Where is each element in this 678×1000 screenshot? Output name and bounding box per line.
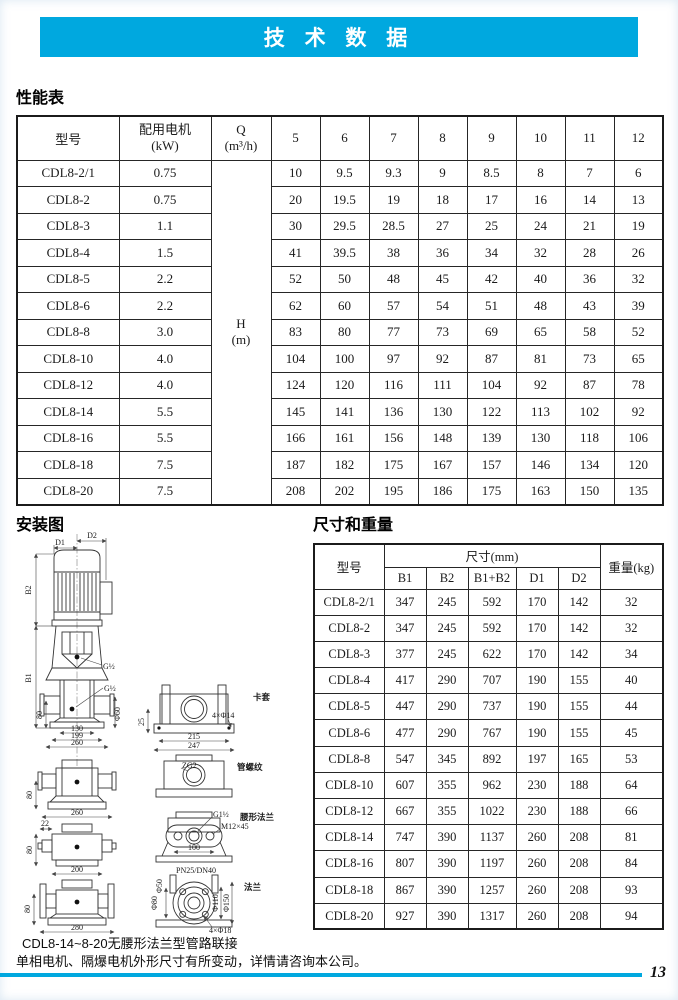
h-value-cell: 182 bbox=[320, 452, 369, 479]
h-value-cell: 52 bbox=[271, 266, 320, 293]
b2-cell: 290 bbox=[426, 694, 468, 720]
table-row: CDL8-647729076719015545 bbox=[314, 720, 663, 746]
model-cell: CDL8-4 bbox=[17, 240, 119, 267]
h-value-cell: 113 bbox=[516, 399, 565, 426]
h-value-cell: 202 bbox=[320, 478, 369, 505]
h-unit: (m) bbox=[212, 332, 271, 348]
table-row: CDL8-187.5187182175167157146134120 bbox=[17, 452, 663, 479]
b2-cell: 355 bbox=[426, 772, 468, 798]
table-row: CDL8-16807390119726020884 bbox=[314, 851, 663, 877]
flow-value-header: 6 bbox=[320, 116, 369, 160]
weight-cell: 64 bbox=[600, 772, 663, 798]
h-value-cell: 92 bbox=[516, 372, 565, 399]
d2-cell: 155 bbox=[558, 720, 600, 746]
weight-cell: 93 bbox=[600, 877, 663, 903]
installation-diagram: D1 D2 B2 bbox=[16, 528, 311, 936]
b1-cell: 747 bbox=[384, 825, 426, 851]
table-row: CDL8-145.514514113613012211310292 bbox=[17, 399, 663, 426]
performance-table: 型号 配用电机(kW) Q(m³/h) 5 6 7 8 9 10 11 12 C… bbox=[16, 115, 664, 506]
d1-cell: 190 bbox=[516, 694, 558, 720]
d2-cell: 142 bbox=[558, 641, 600, 667]
table-row: CDL8-2/1 0.75 H(m) 109.59.398.5876 bbox=[17, 160, 663, 187]
h-value-cell: 48 bbox=[516, 293, 565, 320]
h-value-cell: 166 bbox=[271, 425, 320, 452]
b1b2-cell: 707 bbox=[468, 668, 516, 694]
label-pipe-thread: 管螺纹 bbox=[237, 762, 263, 772]
dim-label-b1: B1 bbox=[24, 673, 33, 682]
base-view-ferrule: 80 260 bbox=[25, 760, 116, 817]
h-value-cell: 32 bbox=[614, 266, 663, 293]
table-row: CDL8-20.752019.5191817161413 bbox=[17, 187, 663, 214]
h-value-cell: 19.5 bbox=[320, 187, 369, 214]
h-value-cell: 7 bbox=[565, 160, 614, 187]
model-cell: CDL8-3 bbox=[314, 641, 384, 667]
h-value-cell: 116 bbox=[369, 372, 418, 399]
table-row: CDL8-52.25250484542403632 bbox=[17, 266, 663, 293]
h-value-cell: 16 bbox=[516, 187, 565, 214]
footer-rule bbox=[0, 973, 642, 977]
d2-cell: 155 bbox=[558, 668, 600, 694]
d1-cell: 260 bbox=[516, 877, 558, 903]
h-symbol: H bbox=[212, 316, 271, 332]
h-value-cell: 195 bbox=[369, 478, 418, 505]
h-value-cell: 50 bbox=[320, 266, 369, 293]
model-header-cell: 型号 bbox=[314, 544, 384, 589]
kw-cell: 7.5 bbox=[119, 478, 211, 505]
model-cell: CDL8-8 bbox=[314, 746, 384, 772]
stand-view-flange: PN25/DN40 Φ50 Φ80 Φ110 Φ150 4×Φ18 法兰 bbox=[150, 866, 262, 935]
h-value-cell: 41 bbox=[271, 240, 320, 267]
dim-label-280: 280 bbox=[71, 923, 83, 932]
table-row: CDL8-1060735596223018864 bbox=[314, 772, 663, 798]
h-value-cell: 83 bbox=[271, 319, 320, 346]
table-row: CDL8-854734589219716553 bbox=[314, 746, 663, 772]
h-value-cell: 30 bbox=[271, 213, 320, 240]
h-value-cell: 9.3 bbox=[369, 160, 418, 187]
size-col-header: D1 bbox=[516, 567, 558, 589]
table-row: CDL8-31.13029.528.52725242119 bbox=[17, 213, 663, 240]
kw-cell: 1.1 bbox=[119, 213, 211, 240]
h-value-cell: 39.5 bbox=[320, 240, 369, 267]
dim-label-260: 260 bbox=[71, 738, 83, 747]
model-cell: CDL8-6 bbox=[17, 293, 119, 320]
kw-cell: 0.75 bbox=[119, 187, 211, 214]
kw-cell: 3.0 bbox=[119, 319, 211, 346]
d2-cell: 165 bbox=[558, 746, 600, 772]
d2-cell: 208 bbox=[558, 825, 600, 851]
weight-cell: 40 bbox=[600, 668, 663, 694]
d2-cell: 142 bbox=[558, 589, 600, 615]
model-cell: CDL8-12 bbox=[314, 799, 384, 825]
model-cell: CDL8-14 bbox=[17, 399, 119, 426]
dim-label-80: 80 bbox=[35, 711, 44, 719]
motor-header-line1: 配用电机 bbox=[120, 122, 211, 138]
kw-cell: 4.0 bbox=[119, 346, 211, 373]
terminal-box bbox=[100, 582, 112, 614]
h-value-cell: 124 bbox=[271, 372, 320, 399]
kw-cell: 1.5 bbox=[119, 240, 211, 267]
h-value-cell: 157 bbox=[467, 452, 516, 479]
dim-label-80: 80 bbox=[25, 791, 34, 799]
h-value-cell: 36 bbox=[565, 266, 614, 293]
d2-cell: 188 bbox=[558, 799, 600, 825]
h-value-cell: 80 bbox=[320, 319, 369, 346]
size-col-header: B1+B2 bbox=[468, 567, 516, 589]
b1b2-cell: 767 bbox=[468, 720, 516, 746]
dim-label-260: 260 bbox=[71, 808, 83, 817]
model-cell: CDL8-18 bbox=[314, 877, 384, 903]
h-value-cell: 150 bbox=[565, 478, 614, 505]
h-value-cell: 118 bbox=[565, 425, 614, 452]
table-row: CDL8-441729070719015540 bbox=[314, 668, 663, 694]
dim-label-100: 100 bbox=[188, 843, 200, 852]
model-header-cell: 型号 bbox=[17, 116, 119, 160]
h-value-cell: 130 bbox=[418, 399, 467, 426]
pump-front-view: D1 D2 B2 bbox=[24, 531, 122, 766]
performance-section-heading: 性能表 bbox=[16, 84, 64, 108]
h-value-cell: 208 bbox=[271, 478, 320, 505]
flow-value-header: 9 bbox=[467, 116, 516, 160]
h-value-cell: 163 bbox=[516, 478, 565, 505]
h-value-cell: 48 bbox=[369, 266, 418, 293]
weight-cell: 66 bbox=[600, 799, 663, 825]
h-value-cell: 92 bbox=[418, 346, 467, 373]
b1-cell: 547 bbox=[384, 746, 426, 772]
dim-label-m12x45: M12×45 bbox=[221, 822, 249, 831]
h-value-cell: 62 bbox=[271, 293, 320, 320]
table-header-row: 型号 尺寸(mm) 重量(kg) bbox=[314, 544, 663, 567]
kw-cell: 2.2 bbox=[119, 266, 211, 293]
b2-cell: 290 bbox=[426, 668, 468, 694]
table-row: CDL8-14747390113726020881 bbox=[314, 825, 663, 851]
port-label-g-half-1: G½ bbox=[103, 662, 115, 671]
table-row: CDL8-165.5166161156148139130118106 bbox=[17, 425, 663, 452]
b1-cell: 667 bbox=[384, 799, 426, 825]
model-cell: CDL8-2 bbox=[314, 615, 384, 641]
h-value-cell: 120 bbox=[320, 372, 369, 399]
b2-cell: 390 bbox=[426, 877, 468, 903]
table-row: CDL8-83.08380777369655852 bbox=[17, 319, 663, 346]
weight-cell: 53 bbox=[600, 746, 663, 772]
h-value-cell: 58 bbox=[565, 319, 614, 346]
h-value-cell: 145 bbox=[271, 399, 320, 426]
h-value-cell: 73 bbox=[565, 346, 614, 373]
note-motor-dimensions: 单相电机、隔爆电机外形尺寸有所变动，详情请咨询本公司。 bbox=[16, 951, 367, 970]
d1-cell: 170 bbox=[516, 615, 558, 641]
b1b2-cell: 592 bbox=[468, 615, 516, 641]
dimensions-section-heading: 尺寸和重量 bbox=[313, 511, 393, 535]
h-value-cell: 13 bbox=[614, 187, 663, 214]
d2-cell: 208 bbox=[558, 851, 600, 877]
dim-label-d2: D2 bbox=[87, 531, 97, 540]
stand-view-pipe-thread: ZG2 管螺纹 bbox=[156, 755, 263, 797]
base-view-threaded: 22 80 200 bbox=[25, 819, 116, 874]
h-value-cell: 18 bbox=[418, 187, 467, 214]
b2-cell: 245 bbox=[426, 589, 468, 615]
weight-header-cell: 重量(kg) bbox=[600, 544, 663, 589]
flow-value-header: 10 bbox=[516, 116, 565, 160]
h-value-cell: 27 bbox=[418, 213, 467, 240]
b1b2-cell: 962 bbox=[468, 772, 516, 798]
d1-cell: 260 bbox=[516, 825, 558, 851]
table-row: CDL8-18867390125726020893 bbox=[314, 877, 663, 903]
h-value-cell: 77 bbox=[369, 319, 418, 346]
motor-header-cell: 配用电机(kW) bbox=[119, 116, 211, 160]
kw-cell: 5.5 bbox=[119, 399, 211, 426]
h-value-cell: 9.5 bbox=[320, 160, 369, 187]
b1-cell: 377 bbox=[384, 641, 426, 667]
table-row: CDL8-2/134724559217014232 bbox=[314, 589, 663, 615]
model-cell: CDL8-2/1 bbox=[314, 589, 384, 615]
model-cell: CDL8-20 bbox=[314, 903, 384, 929]
banner-title: 技 术 数 据 bbox=[264, 22, 415, 52]
table-row: CDL8-207.5208202195186175163150135 bbox=[17, 478, 663, 505]
page-banner: 技 术 数 据 bbox=[40, 17, 638, 57]
weight-cell: 45 bbox=[600, 720, 663, 746]
h-value-cell: 29.5 bbox=[320, 213, 369, 240]
d1-cell: 170 bbox=[516, 641, 558, 667]
table-row: CDL8-234724559217014232 bbox=[314, 615, 663, 641]
d2-cell: 208 bbox=[558, 877, 600, 903]
dim-label-80: 80 bbox=[25, 846, 34, 854]
h-value-cell: 26 bbox=[614, 240, 663, 267]
model-cell: CDL8-12 bbox=[17, 372, 119, 399]
h-value-cell: 97 bbox=[369, 346, 418, 373]
h-value-cell: 45 bbox=[418, 266, 467, 293]
dim-label-phi50: Φ50 bbox=[155, 879, 164, 893]
h-value-cell: 14 bbox=[565, 187, 614, 214]
model-cell: CDL8-16 bbox=[314, 851, 384, 877]
h-value-cell: 120 bbox=[614, 452, 663, 479]
b1-cell: 417 bbox=[384, 668, 426, 694]
b1b2-cell: 892 bbox=[468, 746, 516, 772]
dim-label-phi110: Φ110 bbox=[211, 894, 220, 912]
dimensions-table: 型号 尺寸(mm) 重量(kg) B1 B2 B1+B2 D1 D2 CDL8-… bbox=[313, 543, 664, 930]
h-value-cell: 42 bbox=[467, 266, 516, 293]
d1-cell: 230 bbox=[516, 772, 558, 798]
weight-cell: 84 bbox=[600, 851, 663, 877]
weight-cell: 94 bbox=[600, 903, 663, 929]
h-value-cell: 57 bbox=[369, 293, 418, 320]
model-cell: CDL8-5 bbox=[17, 266, 119, 293]
h-value-cell: 141 bbox=[320, 399, 369, 426]
h-value-cell: 28.5 bbox=[369, 213, 418, 240]
flow-value-header: 8 bbox=[418, 116, 467, 160]
d2-cell: 188 bbox=[558, 772, 600, 798]
b1b2-cell: 1197 bbox=[468, 851, 516, 877]
h-value-cell: 19 bbox=[369, 187, 418, 214]
b1-cell: 447 bbox=[384, 694, 426, 720]
h-value-cell: 60 bbox=[320, 293, 369, 320]
model-cell: CDL8-20 bbox=[17, 478, 119, 505]
table-row: CDL8-544729073719015544 bbox=[314, 694, 663, 720]
model-cell: CDL8-2/1 bbox=[17, 160, 119, 187]
h-value-cell: 187 bbox=[271, 452, 320, 479]
d1-cell: 190 bbox=[516, 668, 558, 694]
h-value-cell: 139 bbox=[467, 425, 516, 452]
b2-cell: 390 bbox=[426, 903, 468, 929]
kw-cell: 2.2 bbox=[119, 293, 211, 320]
kw-cell: 7.5 bbox=[119, 452, 211, 479]
d1-cell: 190 bbox=[516, 720, 558, 746]
b2-cell: 390 bbox=[426, 825, 468, 851]
b2-cell: 355 bbox=[426, 799, 468, 825]
b2-cell: 390 bbox=[426, 851, 468, 877]
dim-label-200: 200 bbox=[71, 865, 83, 874]
stand-view-waist-flange: 100 G1½ M12×45 腰形法兰 bbox=[156, 810, 275, 862]
dim-label-247: 247 bbox=[188, 741, 200, 750]
d1-cell: 260 bbox=[516, 851, 558, 877]
dim-label-phi80: Φ80 bbox=[150, 896, 159, 910]
h-value-cell: 21 bbox=[565, 213, 614, 240]
dim-label-4x14: 4×Φ14 bbox=[212, 711, 234, 720]
table-row: CDL8-20927390131726020894 bbox=[314, 903, 663, 929]
h-value-cell: 146 bbox=[516, 452, 565, 479]
b1-cell: 607 bbox=[384, 772, 426, 798]
d1-cell: 260 bbox=[516, 903, 558, 929]
h-value-cell: 175 bbox=[467, 478, 516, 505]
model-cell: CDL8-10 bbox=[17, 346, 119, 373]
h-value-cell: 73 bbox=[418, 319, 467, 346]
h-value-cell: 87 bbox=[467, 346, 516, 373]
d1-cell: 197 bbox=[516, 746, 558, 772]
label-waist-flange: 腰形法兰 bbox=[239, 812, 275, 822]
h-value-cell: 54 bbox=[418, 293, 467, 320]
h-value-cell: 175 bbox=[369, 452, 418, 479]
h-value-cell: 69 bbox=[467, 319, 516, 346]
dim-label-80: 80 bbox=[23, 905, 32, 913]
flow-header-cell: Q(m³/h) bbox=[211, 116, 271, 160]
head-unit-cell: H(m) bbox=[211, 160, 271, 505]
d2-cell: 155 bbox=[558, 694, 600, 720]
h-value-cell: 9 bbox=[418, 160, 467, 187]
note-flange-connection: CDL8-14~8-20无腰形法兰型管路联接 bbox=[22, 933, 238, 952]
b2-cell: 245 bbox=[426, 641, 468, 667]
table-row: CDL8-124.0124120116111104928778 bbox=[17, 372, 663, 399]
b1b2-cell: 592 bbox=[468, 589, 516, 615]
table-header-row: 型号 配用电机(kW) Q(m³/h) 5 6 7 8 9 10 11 12 bbox=[17, 116, 663, 160]
model-cell: CDL8-18 bbox=[17, 452, 119, 479]
h-value-cell: 51 bbox=[467, 293, 516, 320]
table-row: CDL8-12667355102223018866 bbox=[314, 799, 663, 825]
dim-label-25: 25 bbox=[137, 718, 146, 726]
model-cell: CDL8-14 bbox=[314, 825, 384, 851]
b2-cell: 290 bbox=[426, 720, 468, 746]
h-value-cell: 100 bbox=[320, 346, 369, 373]
h-value-cell: 104 bbox=[467, 372, 516, 399]
h-value-cell: 78 bbox=[614, 372, 663, 399]
motor-body bbox=[52, 550, 112, 626]
b1-cell: 867 bbox=[384, 877, 426, 903]
h-value-cell: 25 bbox=[467, 213, 516, 240]
model-cell: CDL8-5 bbox=[314, 694, 384, 720]
q-unit: (m³/h) bbox=[212, 138, 271, 154]
port-label-g-half-2: G½ bbox=[104, 684, 116, 693]
dim-label-zg2: ZG2 bbox=[182, 761, 197, 770]
flow-value-header: 5 bbox=[271, 116, 320, 160]
label-ferrule: 卡套 bbox=[253, 692, 271, 702]
weight-cell: 34 bbox=[600, 641, 663, 667]
b2-cell: 245 bbox=[426, 615, 468, 641]
dim-label-215: 215 bbox=[188, 732, 200, 741]
model-cell: CDL8-16 bbox=[17, 425, 119, 452]
h-value-cell: 134 bbox=[565, 452, 614, 479]
b1-cell: 477 bbox=[384, 720, 426, 746]
h-value-cell: 167 bbox=[418, 452, 467, 479]
h-value-cell: 65 bbox=[516, 319, 565, 346]
model-cell: CDL8-3 bbox=[17, 213, 119, 240]
b1-cell: 347 bbox=[384, 615, 426, 641]
weight-cell: 32 bbox=[600, 589, 663, 615]
h-value-cell: 28 bbox=[565, 240, 614, 267]
dim-label-phi60: Φ60 bbox=[113, 707, 122, 721]
size-col-header: D2 bbox=[558, 567, 600, 589]
b1b2-cell: 1317 bbox=[468, 903, 516, 929]
h-value-cell: 34 bbox=[467, 240, 516, 267]
h-value-cell: 161 bbox=[320, 425, 369, 452]
h-value-cell: 19 bbox=[614, 213, 663, 240]
motor-header-line2: (kW) bbox=[120, 138, 211, 154]
h-value-cell: 32 bbox=[516, 240, 565, 267]
dim-label-g1half: G1½ bbox=[213, 810, 229, 819]
table-row: CDL8-337724562217014234 bbox=[314, 641, 663, 667]
h-value-cell: 8.5 bbox=[467, 160, 516, 187]
h-value-cell: 6 bbox=[614, 160, 663, 187]
weight-cell: 44 bbox=[600, 694, 663, 720]
label-flange: 法兰 bbox=[244, 882, 262, 892]
kw-cell: 4.0 bbox=[119, 372, 211, 399]
d1-cell: 170 bbox=[516, 589, 558, 615]
h-value-cell: 104 bbox=[271, 346, 320, 373]
h-value-cell: 148 bbox=[418, 425, 467, 452]
model-cell: CDL8-8 bbox=[17, 319, 119, 346]
dim-label-pn: PN25/DN40 bbox=[176, 866, 216, 875]
b2-cell: 345 bbox=[426, 746, 468, 772]
h-value-cell: 122 bbox=[467, 399, 516, 426]
size-group-header-cell: 尺寸(mm) bbox=[384, 544, 600, 567]
h-value-cell: 43 bbox=[565, 293, 614, 320]
flow-value-header: 11 bbox=[565, 116, 614, 160]
h-value-cell: 8 bbox=[516, 160, 565, 187]
h-value-cell: 36 bbox=[418, 240, 467, 267]
h-value-cell: 10 bbox=[271, 160, 320, 187]
d2-cell: 142 bbox=[558, 615, 600, 641]
b1b2-cell: 1257 bbox=[468, 877, 516, 903]
h-value-cell: 24 bbox=[516, 213, 565, 240]
base-view-flanged: 80 280 bbox=[23, 880, 114, 932]
dim-label-b2: B2 bbox=[24, 585, 33, 594]
kw-cell: 0.75 bbox=[119, 160, 211, 187]
b1b2-cell: 1137 bbox=[468, 825, 516, 851]
b1b2-cell: 737 bbox=[468, 694, 516, 720]
dim-label-22: 22 bbox=[41, 819, 49, 828]
flow-value-header: 7 bbox=[369, 116, 418, 160]
h-value-cell: 102 bbox=[565, 399, 614, 426]
h-value-cell: 87 bbox=[565, 372, 614, 399]
h-value-cell: 136 bbox=[369, 399, 418, 426]
table-row: CDL8-62.26260575451484339 bbox=[17, 293, 663, 320]
size-col-header: B1 bbox=[384, 567, 426, 589]
h-value-cell: 111 bbox=[418, 372, 467, 399]
b1-cell: 807 bbox=[384, 851, 426, 877]
h-value-cell: 106 bbox=[614, 425, 663, 452]
h-value-cell: 39 bbox=[614, 293, 663, 320]
h-value-cell: 130 bbox=[516, 425, 565, 452]
model-cell: CDL8-2 bbox=[17, 187, 119, 214]
kw-cell: 5.5 bbox=[119, 425, 211, 452]
h-value-cell: 156 bbox=[369, 425, 418, 452]
table-row: CDL8-41.54139.5383634322826 bbox=[17, 240, 663, 267]
